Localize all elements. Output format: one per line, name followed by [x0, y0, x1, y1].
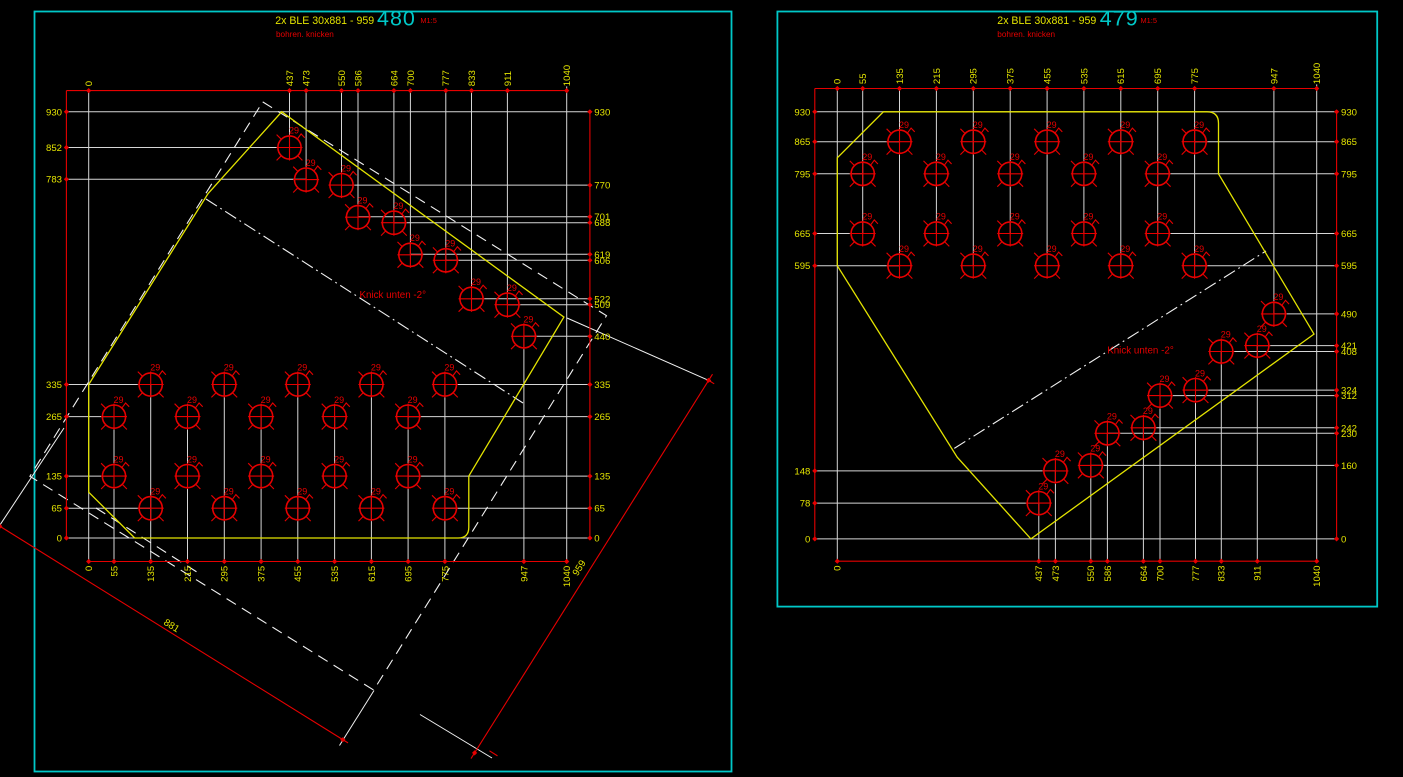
svg-text:29: 29	[1160, 374, 1170, 384]
svg-text:665: 665	[794, 229, 810, 240]
svg-text:29: 29	[1083, 152, 1093, 162]
svg-text:29: 29	[1157, 152, 1167, 162]
svg-text:29: 29	[899, 120, 909, 130]
svg-text:29: 29	[297, 363, 307, 373]
svg-text:947: 947	[1269, 68, 1280, 84]
svg-text:65: 65	[594, 504, 605, 515]
svg-text:29: 29	[150, 486, 160, 496]
svg-text:664: 664	[1139, 565, 1150, 582]
svg-text:1040: 1040	[1312, 63, 1323, 84]
svg-text:29: 29	[862, 152, 872, 162]
svg-text:29: 29	[114, 454, 124, 464]
svg-text:783: 783	[46, 175, 62, 186]
svg-text:509: 509	[594, 300, 610, 311]
svg-text:1040: 1040	[562, 566, 573, 587]
svg-text:473: 473	[302, 70, 313, 86]
svg-text:335: 335	[46, 380, 62, 391]
svg-text:335: 335	[594, 380, 610, 391]
svg-text:29: 29	[306, 158, 316, 168]
svg-text:29: 29	[114, 395, 124, 405]
svg-text:535: 535	[330, 566, 341, 582]
svg-text:29: 29	[1010, 212, 1020, 222]
svg-text:29: 29	[408, 454, 418, 464]
svg-text:480: 480	[377, 7, 416, 31]
svg-text:29: 29	[410, 233, 420, 243]
svg-text:29: 29	[371, 486, 381, 496]
svg-text:852: 852	[46, 143, 62, 154]
svg-text:29: 29	[1047, 244, 1057, 254]
svg-text:664: 664	[389, 70, 400, 87]
svg-text:29: 29	[1195, 368, 1205, 378]
svg-text:312: 312	[1341, 391, 1357, 402]
svg-text:550: 550	[1086, 566, 1097, 582]
svg-text:0: 0	[594, 534, 599, 545]
svg-text:615: 615	[1116, 68, 1127, 84]
svg-text:29: 29	[523, 315, 533, 325]
svg-text:437: 437	[1034, 566, 1045, 582]
svg-text:595: 595	[1341, 261, 1357, 272]
svg-text:230: 230	[1341, 429, 1357, 440]
svg-text:295: 295	[969, 68, 980, 84]
svg-text:29: 29	[297, 486, 307, 496]
svg-text:29: 29	[1221, 330, 1231, 340]
svg-text:265: 265	[594, 412, 610, 423]
svg-text:29: 29	[899, 244, 909, 254]
svg-text:911: 911	[1253, 566, 1264, 581]
svg-text:Knick unten -2°: Knick unten -2°	[1107, 345, 1174, 356]
svg-text:479: 479	[1100, 7, 1139, 31]
svg-text:408: 408	[1341, 347, 1357, 358]
svg-text:700: 700	[406, 70, 417, 86]
svg-text:29: 29	[1120, 120, 1130, 130]
svg-text:930: 930	[594, 107, 610, 118]
svg-text:29: 29	[261, 454, 271, 464]
svg-text:455: 455	[293, 566, 304, 582]
svg-text:0: 0	[84, 81, 95, 86]
svg-text:bohren. knicken: bohren. knicken	[276, 30, 334, 39]
svg-text:29: 29	[1194, 120, 1204, 130]
svg-text:665: 665	[1341, 229, 1357, 240]
svg-text:440: 440	[594, 332, 610, 343]
svg-text:0: 0	[805, 534, 810, 545]
svg-text:930: 930	[794, 107, 810, 118]
svg-text:29: 29	[224, 363, 234, 373]
svg-text:135: 135	[46, 472, 62, 483]
svg-text:770: 770	[594, 181, 610, 192]
svg-text:606: 606	[594, 256, 610, 267]
svg-text:930: 930	[46, 107, 62, 118]
svg-text:586: 586	[1103, 566, 1114, 582]
svg-text:29: 29	[1273, 292, 1283, 302]
svg-text:55: 55	[858, 73, 869, 84]
svg-text:29: 29	[936, 152, 946, 162]
svg-text:Knick unten -2°: Knick unten -2°	[360, 290, 427, 301]
svg-text:0: 0	[833, 79, 844, 84]
svg-text:695: 695	[1153, 68, 1164, 84]
svg-text:586: 586	[353, 70, 364, 86]
svg-text:215: 215	[932, 68, 943, 84]
svg-text:777: 777	[441, 70, 452, 86]
svg-text:29: 29	[507, 283, 517, 293]
svg-text:947: 947	[519, 566, 530, 582]
svg-text:833: 833	[1217, 566, 1228, 582]
svg-text:78: 78	[800, 499, 811, 510]
svg-text:29: 29	[444, 486, 454, 496]
svg-text:29: 29	[358, 195, 368, 205]
svg-text:29: 29	[1055, 449, 1065, 459]
svg-text:911: 911	[503, 71, 514, 86]
svg-text:1040: 1040	[562, 65, 573, 86]
svg-text:700: 700	[1155, 566, 1166, 582]
svg-text:29: 29	[444, 363, 454, 373]
svg-text:29: 29	[1083, 212, 1093, 222]
svg-text:29: 29	[187, 454, 197, 464]
svg-text:2x BLE 30x881 - 959: 2x BLE 30x881 - 959	[275, 15, 374, 27]
svg-text:375: 375	[256, 566, 267, 582]
svg-text:265: 265	[46, 412, 62, 423]
svg-text:550: 550	[337, 70, 348, 86]
svg-text:29: 29	[445, 239, 455, 249]
svg-text:29: 29	[371, 363, 381, 373]
svg-text:55: 55	[109, 566, 120, 577]
svg-text:833: 833	[467, 70, 478, 86]
svg-text:1040: 1040	[1312, 566, 1323, 587]
svg-text:29: 29	[393, 201, 403, 211]
svg-text:29: 29	[1010, 152, 1020, 162]
svg-text:29: 29	[408, 395, 418, 405]
svg-text:29: 29	[862, 212, 872, 222]
svg-text:865: 865	[794, 137, 810, 148]
svg-text:bohren. knicken: bohren. knicken	[997, 30, 1055, 39]
svg-text:930: 930	[1341, 107, 1357, 118]
svg-text:0: 0	[57, 534, 62, 545]
svg-text:795: 795	[794, 169, 810, 180]
svg-text:795: 795	[1341, 169, 1357, 180]
svg-text:375: 375	[1006, 68, 1017, 84]
svg-text:2x BLE 30x881 - 959: 2x BLE 30x881 - 959	[997, 15, 1096, 27]
svg-text:865: 865	[1341, 137, 1357, 148]
svg-text:29: 29	[150, 363, 160, 373]
svg-text:29: 29	[224, 486, 234, 496]
svg-text:148: 148	[794, 466, 810, 477]
svg-text:437: 437	[285, 70, 296, 86]
svg-text:775: 775	[1190, 68, 1201, 84]
svg-text:29: 29	[936, 212, 946, 222]
svg-text:775: 775	[440, 566, 451, 582]
svg-text:777: 777	[1191, 566, 1202, 582]
svg-text:29: 29	[1107, 412, 1117, 422]
svg-text:29: 29	[973, 244, 983, 254]
svg-text:29: 29	[1047, 120, 1057, 130]
svg-text:295: 295	[220, 566, 231, 582]
svg-text:29: 29	[334, 454, 344, 464]
svg-text:688: 688	[594, 218, 610, 229]
svg-text:M1:5: M1:5	[1141, 16, 1157, 25]
svg-text:455: 455	[1043, 68, 1054, 84]
svg-text:29: 29	[1120, 244, 1130, 254]
svg-text:29: 29	[187, 395, 197, 405]
svg-text:535: 535	[1079, 68, 1090, 84]
svg-text:29: 29	[471, 277, 481, 287]
svg-text:135: 135	[594, 472, 610, 483]
svg-text:0: 0	[833, 566, 844, 571]
svg-text:215: 215	[183, 566, 194, 582]
svg-text:615: 615	[367, 566, 378, 582]
svg-text:135: 135	[895, 68, 906, 84]
svg-text:29: 29	[341, 163, 351, 173]
svg-text:29: 29	[1194, 244, 1204, 254]
svg-text:29: 29	[261, 395, 271, 405]
svg-text:0: 0	[1341, 534, 1346, 545]
svg-text:65: 65	[51, 504, 62, 515]
svg-text:595: 595	[794, 261, 810, 272]
svg-text:160: 160	[1341, 461, 1357, 472]
svg-text:695: 695	[404, 566, 415, 582]
svg-text:0: 0	[84, 566, 95, 571]
svg-text:135: 135	[146, 566, 157, 582]
svg-text:29: 29	[289, 126, 299, 136]
svg-text:29: 29	[334, 395, 344, 405]
svg-text:490: 490	[1341, 309, 1357, 320]
svg-text:M1:5: M1:5	[420, 16, 436, 25]
svg-text:29: 29	[973, 120, 983, 130]
svg-text:473: 473	[1051, 566, 1062, 582]
svg-text:29: 29	[1157, 212, 1167, 222]
